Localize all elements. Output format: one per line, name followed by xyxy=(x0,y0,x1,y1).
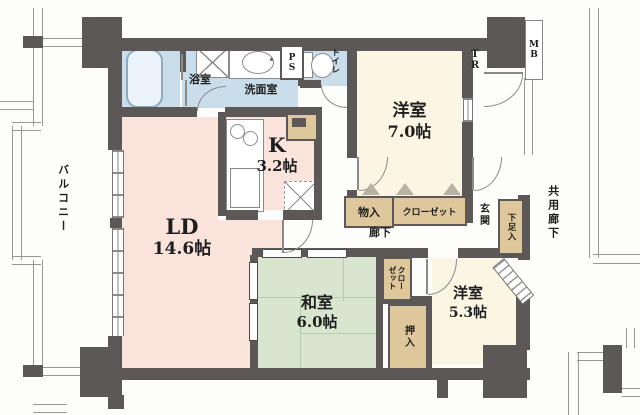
meter-box-strip: MB xyxy=(525,20,543,80)
vanity-sink xyxy=(242,51,274,74)
wall-western7-left xyxy=(347,38,357,158)
floor-plan: 物入 クローゼット 下足入 クローゼット 押入 PS MB 浴室 洗面室 トイレ… xyxy=(0,0,640,415)
meter-box-label: MB xyxy=(529,40,539,60)
ld-door-leaf xyxy=(282,220,284,253)
pipe-space-box: PS xyxy=(280,45,304,80)
shoe-cabinet-label: 下足入 xyxy=(505,213,517,242)
sliding-door xyxy=(307,249,347,258)
tatami-line xyxy=(300,333,376,334)
washroom-label: 洗面室 xyxy=(231,84,291,97)
balcony-window-upper xyxy=(112,150,124,218)
wall-kitchen-left xyxy=(218,112,226,216)
balcony-rail-stub-bottom xyxy=(23,365,43,377)
range-hood-vent xyxy=(292,118,306,127)
balcony-rail xyxy=(33,260,43,372)
folding-door-mark xyxy=(443,183,461,195)
closet-tatami-box: クローゼット xyxy=(382,257,412,301)
western7-size: 7.0帖 xyxy=(357,123,462,141)
wall-left-mid xyxy=(110,218,122,228)
balcony-divider-top xyxy=(0,101,33,110)
kitchen-size: 3.2帖 xyxy=(240,158,314,175)
toilet-door-arc xyxy=(321,85,347,108)
kitchen-name: K xyxy=(240,134,314,157)
pillar-bottom-right xyxy=(483,345,527,398)
western7-name: 洋室 xyxy=(357,102,462,122)
wall-top xyxy=(118,38,490,51)
hallway-label: 廊下 xyxy=(369,227,391,240)
corridor-boundary xyxy=(589,8,599,258)
corridor-boundary xyxy=(593,254,640,264)
pillar-meter-box xyxy=(487,17,525,68)
western7-door-leaf xyxy=(357,157,359,190)
corridor-line xyxy=(626,328,635,348)
balcony-rail xyxy=(33,8,43,126)
pillar-bottom-left xyxy=(80,347,122,397)
balcony-window-lower xyxy=(112,228,124,336)
toilet-label: トイレ xyxy=(329,48,339,84)
common-corridor-label: 共用廊下 xyxy=(546,185,559,261)
bathtub xyxy=(126,49,163,108)
neighbor-pillar xyxy=(603,345,622,393)
closet-tatami-label: クローゼット xyxy=(388,266,406,293)
vanity-faucet xyxy=(270,58,273,61)
wall-bottom xyxy=(118,368,530,380)
japanese-room-name: 和室 xyxy=(258,294,376,312)
storage-label: 物入 xyxy=(358,204,380,220)
western5-name: 洋室 xyxy=(424,285,512,302)
folding-door-mark xyxy=(396,183,414,195)
wall-bottom-stub xyxy=(437,378,448,398)
shoe-cabinet-box: 下足入 xyxy=(498,199,524,255)
corridor-line xyxy=(622,388,640,397)
pipe-space-label: PS xyxy=(287,53,297,73)
closet-hall-box: クローゼット xyxy=(392,196,467,226)
balcony-label: バルコニー xyxy=(56,164,69,252)
ld-size: 14.6帖 xyxy=(127,240,237,260)
storage-box: 物入 xyxy=(344,196,394,228)
japanese-room-size: 6.0帖 xyxy=(258,314,376,331)
ld-name: LD xyxy=(127,215,237,239)
sliding-door xyxy=(249,262,258,300)
entrance-door-arc xyxy=(474,157,502,191)
trunk-room-door-arc xyxy=(484,74,523,107)
entrance-door-leaf xyxy=(472,157,474,190)
futon-closet-label: 押入 xyxy=(401,325,416,349)
balcony-divider-bottom xyxy=(33,404,67,413)
pillar-bottom-left-stub xyxy=(108,395,124,409)
corridor-line xyxy=(568,352,579,415)
balcony-rail-stub-top xyxy=(23,36,43,48)
closet-hall-label: クローゼット xyxy=(402,205,456,218)
corridor-line xyxy=(577,352,603,361)
wall-left-upper xyxy=(108,45,122,150)
balcony-rail-tie-top xyxy=(43,38,82,47)
folding-door-mark xyxy=(362,183,380,195)
trunk-room-label: TR xyxy=(469,49,481,79)
sliding-door xyxy=(249,303,258,341)
futon-closet-box: 押入 xyxy=(388,304,428,370)
western7-side-window xyxy=(463,98,473,122)
wall-toilet-bottom xyxy=(300,80,321,88)
balcony-rail-tie-bottom xyxy=(43,367,82,376)
trunk-screen xyxy=(524,78,533,155)
wall-wet-bottom-west xyxy=(122,107,197,117)
entrance-label: 玄関 xyxy=(477,203,489,247)
balcony-rail xyxy=(12,126,22,260)
trunk-room-door-leaf xyxy=(484,72,523,74)
bath-label: 浴室 xyxy=(176,74,224,87)
western5-size: 5.3帖 xyxy=(424,305,512,321)
